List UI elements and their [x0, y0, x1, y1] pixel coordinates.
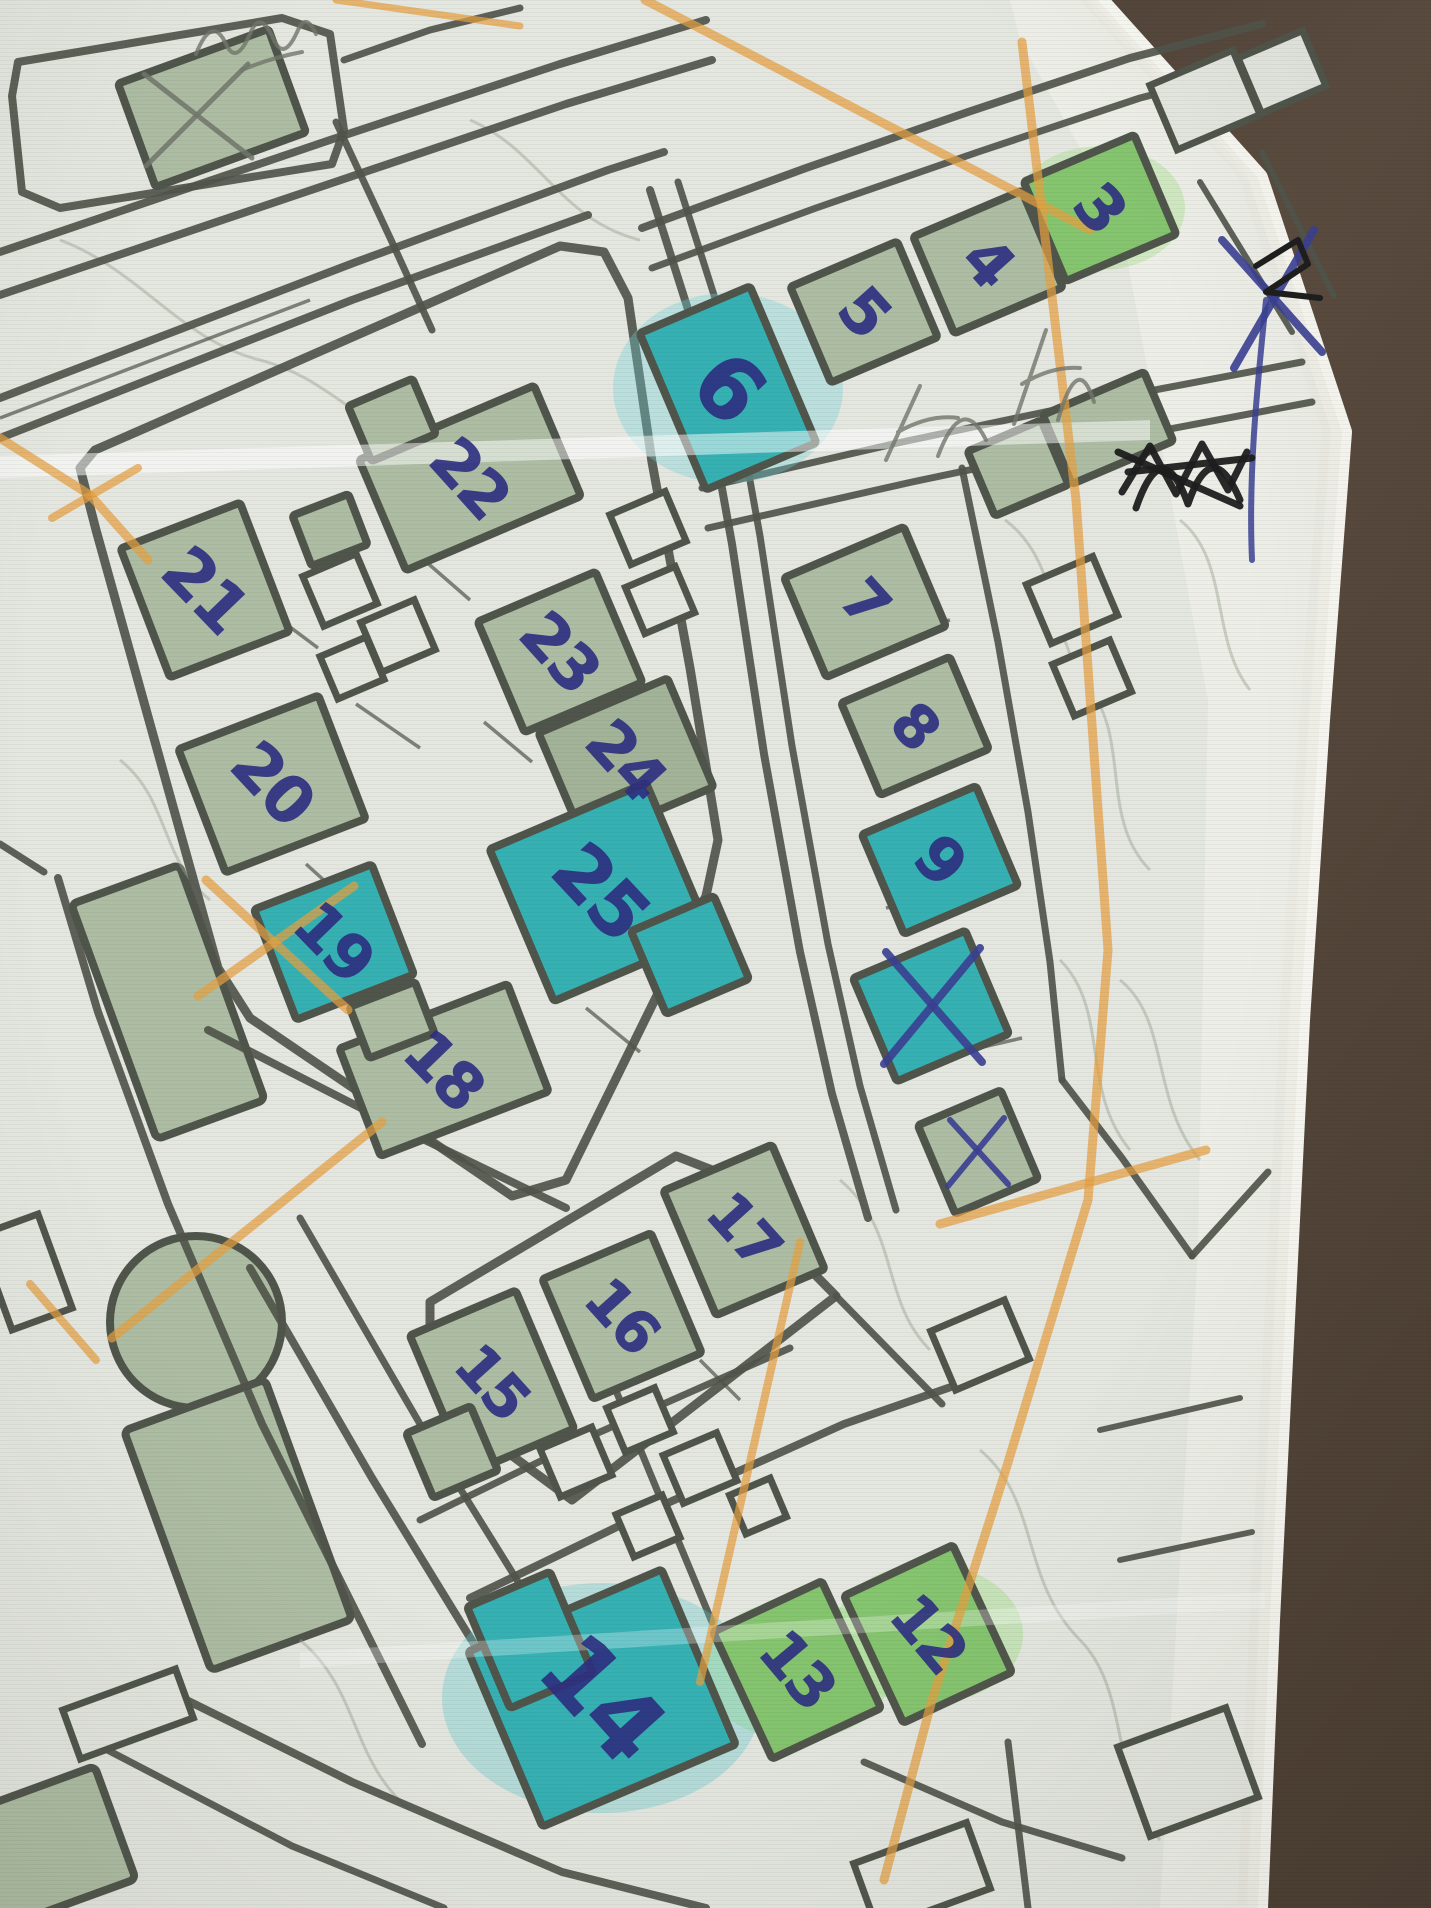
map-photo: 34567892122232024192518171615121314	[0, 0, 1431, 1908]
annotated-street-map: 34567892122232024192518171615121314	[0, 0, 1431, 1908]
